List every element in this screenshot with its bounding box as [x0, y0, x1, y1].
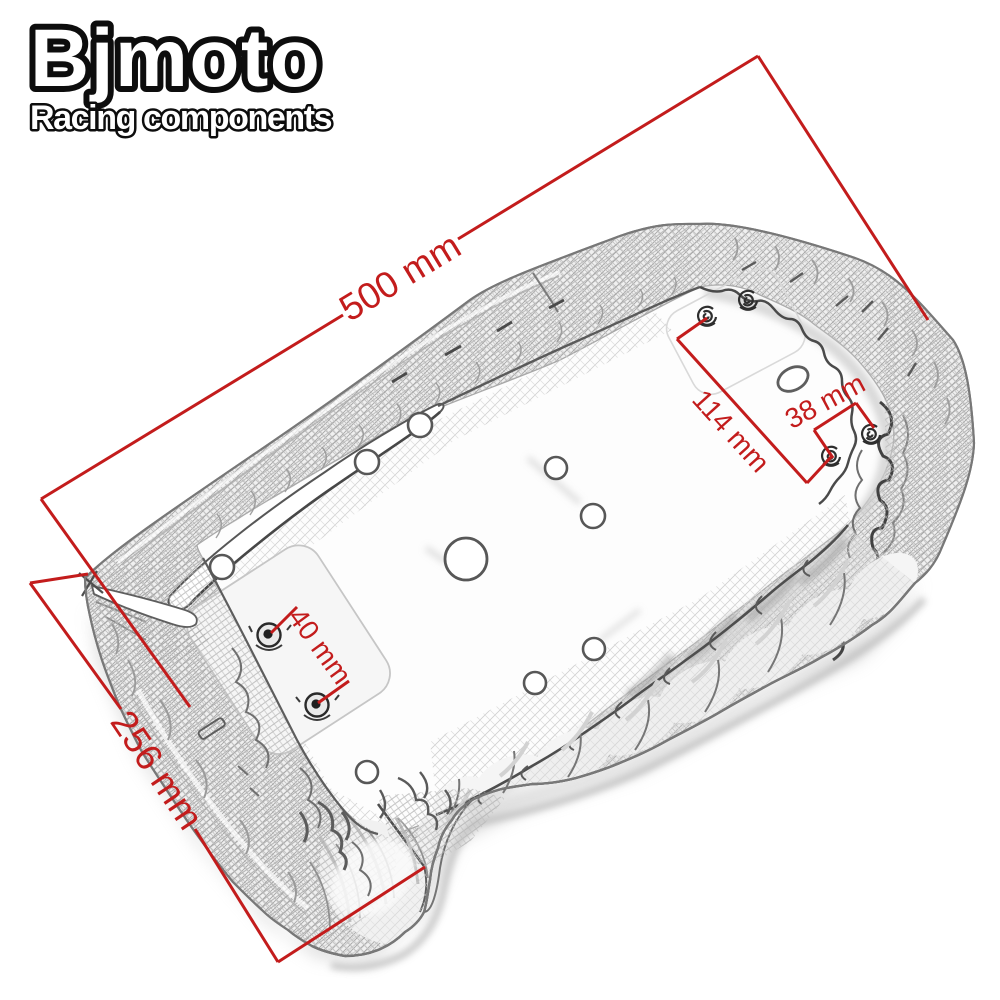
svg-text:Bjmoto: Bjmoto	[30, 13, 321, 104]
svg-text:Racing components: Racing components	[30, 99, 332, 137]
